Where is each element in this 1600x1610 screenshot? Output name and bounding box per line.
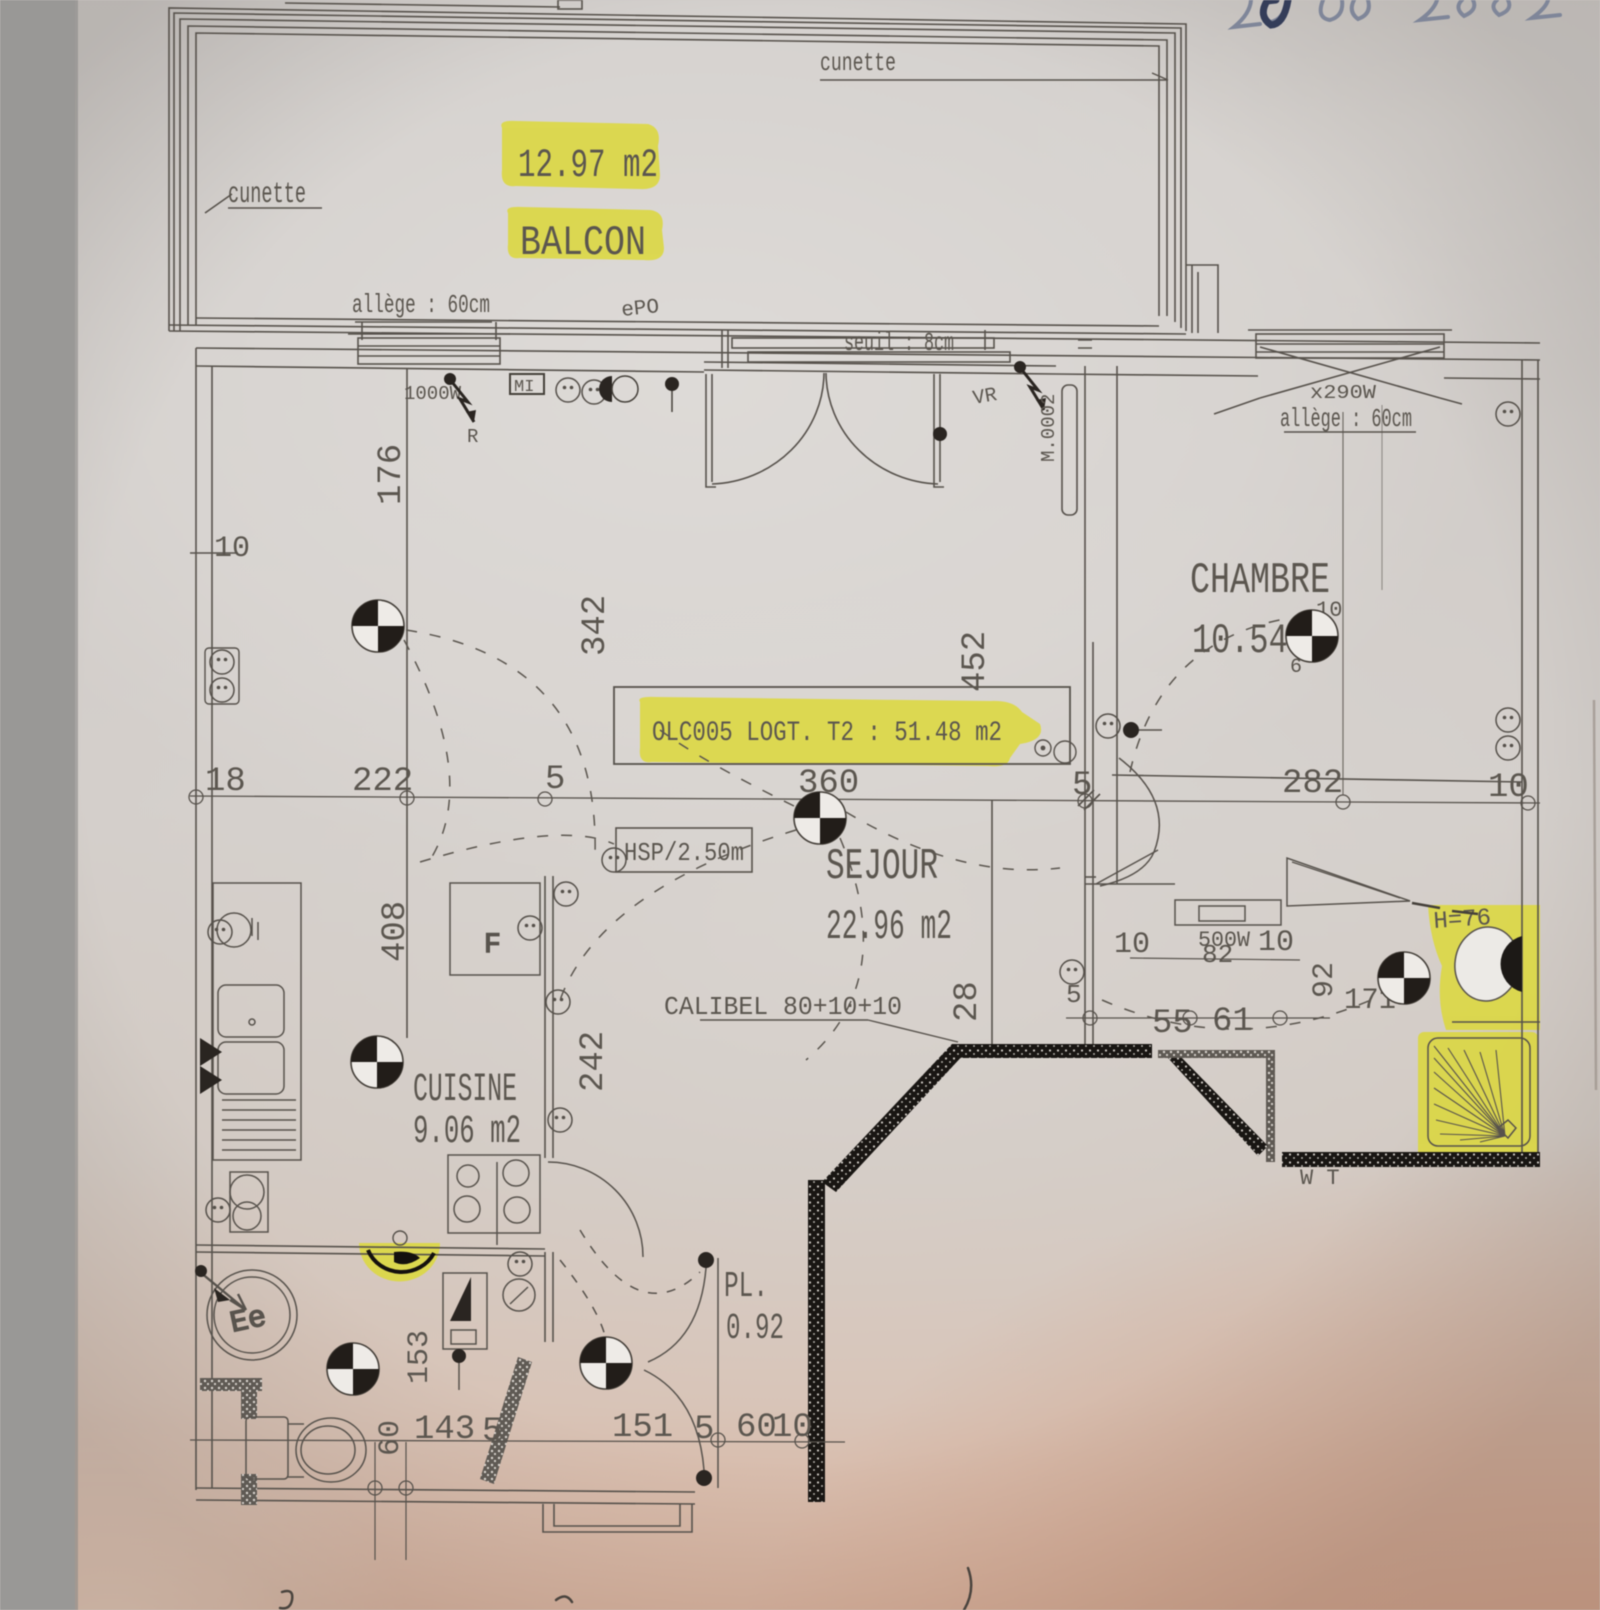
svg-text:M.0002: M.0002	[1038, 394, 1060, 462]
svg-text:28: 28	[949, 981, 987, 1022]
svg-text:153: 153	[403, 1330, 437, 1384]
svg-text:VR: VR	[971, 384, 999, 411]
svg-text:0.92: 0.92	[726, 1308, 784, 1349]
svg-text:allège : 60cm: allège : 60cm	[352, 290, 490, 320]
svg-text:R: R	[467, 426, 478, 448]
svg-text:BALCON: BALCON	[520, 219, 646, 267]
svg-text:18: 18	[205, 763, 246, 801]
svg-text:10: 10	[214, 532, 250, 566]
svg-text:60: 60	[736, 1409, 777, 1447]
svg-text:1000W: 1000W	[404, 383, 462, 405]
svg-text:x290W: x290W	[1310, 382, 1377, 404]
svg-text:9.06 m2: 9.06 m2	[413, 1110, 521, 1155]
svg-text:CHAMBRE: CHAMBRE	[1190, 556, 1330, 606]
svg-text:CALIBEL 80+10+10: CALIBEL 80+10+10	[664, 992, 902, 1022]
svg-text:22.96 m2: 22.96 m2	[826, 903, 952, 951]
svg-text:CUISINE: CUISINE	[413, 1068, 517, 1113]
svg-text:5: 5	[482, 1413, 502, 1451]
svg-text:SEJOUR: SEJOUR	[826, 842, 938, 892]
svg-text:82: 82	[1202, 940, 1233, 970]
svg-text:seuil : 8cm: seuil : 8cm	[844, 328, 954, 358]
svg-text:cunette: cunette	[820, 48, 896, 78]
svg-text:61: 61	[1212, 1003, 1253, 1041]
svg-text:allège : 60cm: allège : 60cm	[1280, 404, 1412, 434]
svg-text:342: 342	[577, 595, 615, 656]
svg-text:92: 92	[1308, 962, 1342, 998]
svg-text:W T: W T	[1300, 1166, 1340, 1191]
svg-text:143: 143	[414, 1411, 475, 1449]
svg-text:282: 282	[1282, 765, 1343, 803]
svg-text:10: 10	[1488, 769, 1529, 807]
svg-text:10: 10	[772, 1409, 813, 1447]
svg-text:222: 222	[352, 763, 413, 801]
svg-text:MI: MI	[514, 378, 534, 397]
svg-text:176: 176	[373, 444, 411, 505]
svg-text:cunette: cunette	[228, 178, 306, 212]
svg-text:12.97 m2: 12.97 m2	[518, 144, 658, 189]
svg-text:ePO: ePO	[620, 296, 660, 323]
svg-text:242: 242	[575, 1031, 613, 1092]
svg-text:10: 10	[1258, 926, 1294, 960]
svg-text:HSP/2.50m: HSP/2.50m	[624, 838, 744, 868]
svg-text:5: 5	[1072, 767, 1092, 805]
svg-text:408: 408	[377, 901, 415, 962]
svg-text:OLC005 LOGT. T2 : 51.48 m2: OLC005 LOGT. T2 : 51.48 m2	[652, 718, 1002, 749]
svg-text:151: 151	[612, 1409, 673, 1447]
svg-text:F: F	[484, 930, 501, 961]
svg-text:PL.: PL.	[724, 1266, 768, 1307]
svg-text:60: 60	[374, 1420, 408, 1456]
svg-text:452: 452	[957, 631, 995, 692]
svg-text:10: 10	[1114, 928, 1150, 962]
